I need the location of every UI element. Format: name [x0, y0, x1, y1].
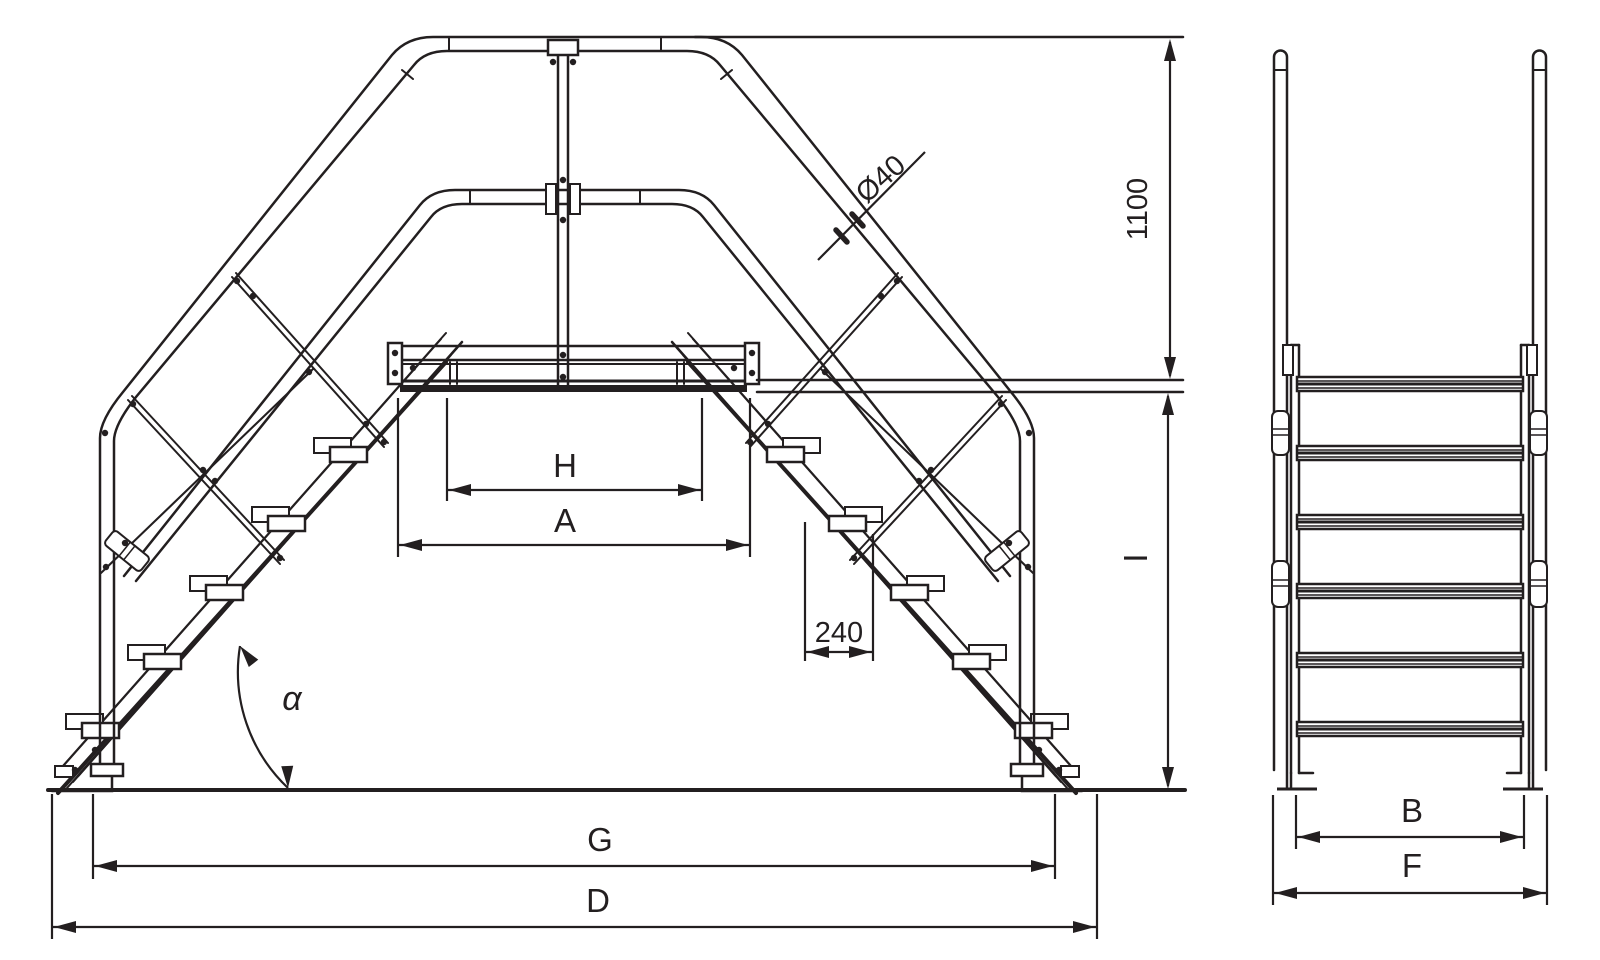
drawing-canvas: Ø40 1100 I H A [0, 0, 1600, 960]
dim-diameter: Ø40 [818, 149, 925, 260]
dim-G: G [93, 794, 1055, 879]
label-H: H [553, 447, 577, 484]
label-alpha: α [282, 680, 303, 718]
label-1100: 1100 [1122, 178, 1154, 240]
treads-front [1297, 377, 1523, 736]
dim-I: I [1117, 393, 1174, 789]
label-F: F [1402, 847, 1422, 884]
post-sleeves [1272, 411, 1547, 607]
side-elevation [1272, 51, 1547, 790]
label-I: I [1117, 553, 1154, 562]
dim-B: B [1296, 792, 1524, 849]
label-G: G [587, 821, 613, 858]
label-A: A [554, 502, 576, 539]
dim-240: 240 [805, 522, 873, 661]
center-post [546, 40, 580, 388]
label-B: B [1401, 792, 1423, 829]
platform-extension-lines [757, 380, 1183, 392]
crossover-stair-technical-drawing: Ø40 1100 I H A [0, 0, 1600, 960]
label-240: 240 [815, 617, 863, 649]
label-D: D [586, 882, 610, 919]
dim-H: H [447, 398, 702, 501]
dim-alpha: α [235, 642, 303, 788]
